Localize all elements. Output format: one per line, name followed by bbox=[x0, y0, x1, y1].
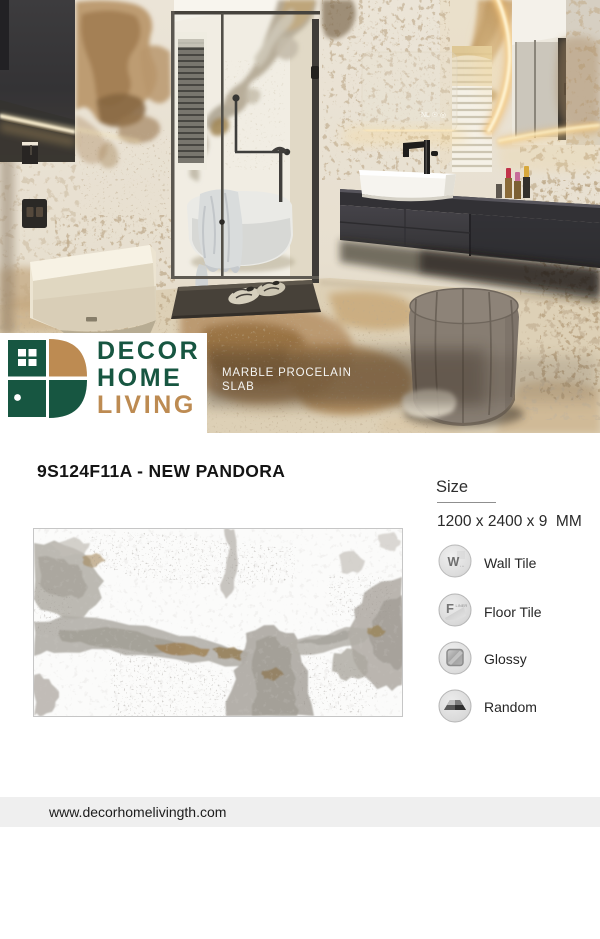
svg-text:NL ☉ ◎: NL ☉ ◎ bbox=[421, 111, 446, 119]
svg-text:LINER: LINER bbox=[456, 603, 468, 608]
svg-text:...: ... bbox=[460, 563, 465, 569]
svg-text:W: W bbox=[448, 555, 460, 569]
svg-text:F: F bbox=[446, 601, 454, 616]
